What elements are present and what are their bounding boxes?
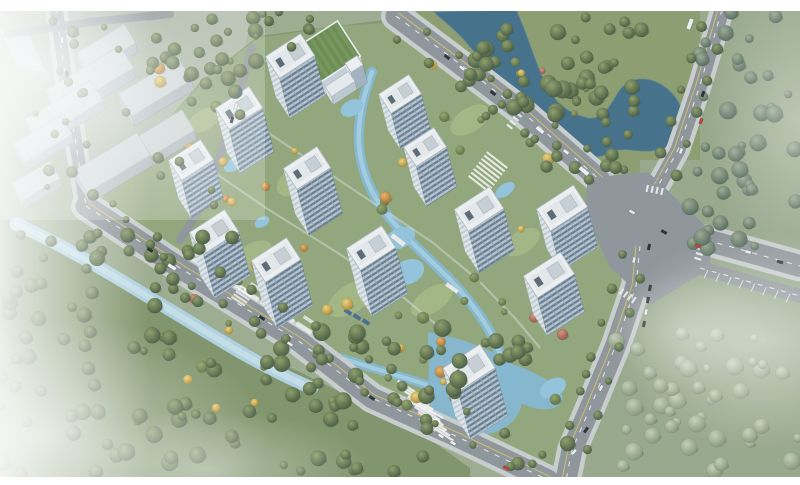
mist-layer	[0, 0, 800, 485]
aerial-rendering-stage	[0, 0, 800, 485]
aerial-site-rendering	[0, 0, 800, 485]
top-white-band	[0, 0, 800, 11]
cool-color-cast	[0, 0, 800, 485]
bottom-white-band	[0, 477, 800, 485]
